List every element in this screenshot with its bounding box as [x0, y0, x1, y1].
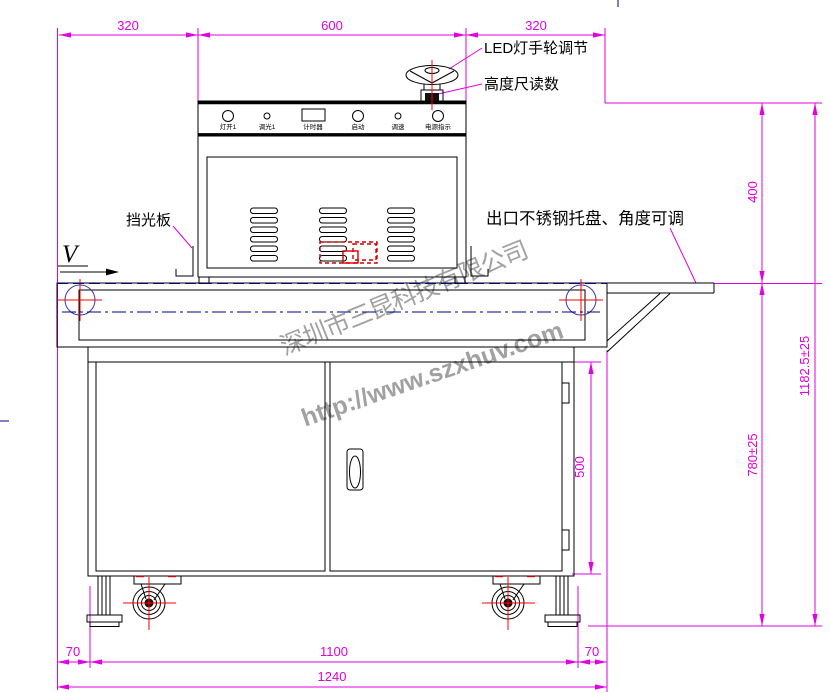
label-exit-tray: 出口不锈钢托盘、角度可调	[486, 209, 684, 228]
cad-drawing-canvas: 深圳市三昆科技有限公司 http://www.szxhuv.com	[0, 0, 830, 693]
light-shield-bracket-left	[176, 246, 193, 276]
dim-table-height: 780±25	[745, 433, 760, 476]
label-belt-direction: V	[62, 241, 80, 268]
leader-exit-tray	[670, 228, 696, 283]
dim-bottom-left: 70	[66, 644, 80, 659]
cabinet	[88, 347, 574, 576]
panel-label-timer: 计时器	[303, 122, 323, 131]
timer-display	[302, 109, 325, 121]
panel-label-start: 启动	[352, 122, 366, 131]
leader-height-scale	[438, 84, 482, 94]
cabinet-door-left	[96, 362, 325, 571]
label-led-handwheel: LED灯手轮调节	[484, 40, 588, 57]
door-hinge-bottom	[562, 530, 569, 550]
panel-label-lamp-switch: 灯开1	[220, 122, 237, 131]
lamp-housing	[198, 136, 466, 284]
caster-right	[482, 576, 540, 630]
annotation-labels: LED灯手轮调节 高度尺读数 挡光板 出口不锈钢托盘、角度可调 V	[62, 40, 684, 268]
label-height-scale: 高度尺读数	[484, 76, 559, 93]
speed-knob	[395, 113, 401, 119]
panel-label-power: 电源指示	[425, 122, 452, 131]
red-stamp-mark	[320, 242, 377, 263]
start-button	[353, 111, 364, 122]
dim-top-right: 320	[525, 18, 547, 33]
panel-label-dimmer: 调光1	[259, 122, 276, 131]
leader-light-shield	[173, 226, 192, 248]
dim-total-width: 1240	[318, 669, 347, 684]
power-indicator-lamp	[433, 111, 444, 122]
dim-top-center: 600	[321, 18, 343, 33]
watermark-layer: 深圳市三昆科技有限公司 http://www.szxhuv.com	[276, 236, 567, 432]
dim-bottom-right: 70	[585, 644, 599, 659]
door-hinge-top	[562, 383, 569, 403]
label-light-shield: 挡光板	[126, 211, 171, 229]
dimmer-knob	[264, 113, 270, 119]
exit-tray	[607, 283, 714, 352]
dim-lamp-height: 400	[745, 181, 760, 203]
control-panel-labels: 灯开1 调光1 计时器 启动 调速 电源指示	[220, 122, 452, 131]
uv-machine-front-view: 深圳市三昆科技有限公司 http://www.szxhuv.com	[0, 0, 830, 693]
panel-label-speed: 调速	[392, 122, 406, 131]
leveling-foot-left	[87, 576, 122, 627]
dim-top-left: 320	[117, 18, 139, 33]
machine-body	[57, 66, 714, 631]
dim-door-height: 500	[572, 456, 587, 478]
dim-total-height: 1182.5±25	[797, 336, 812, 396]
caster-left	[123, 576, 181, 630]
dim-bottom-center: 1100	[320, 644, 348, 659]
leveling-foot-right	[545, 576, 580, 627]
lamp-switch-button	[223, 111, 234, 122]
